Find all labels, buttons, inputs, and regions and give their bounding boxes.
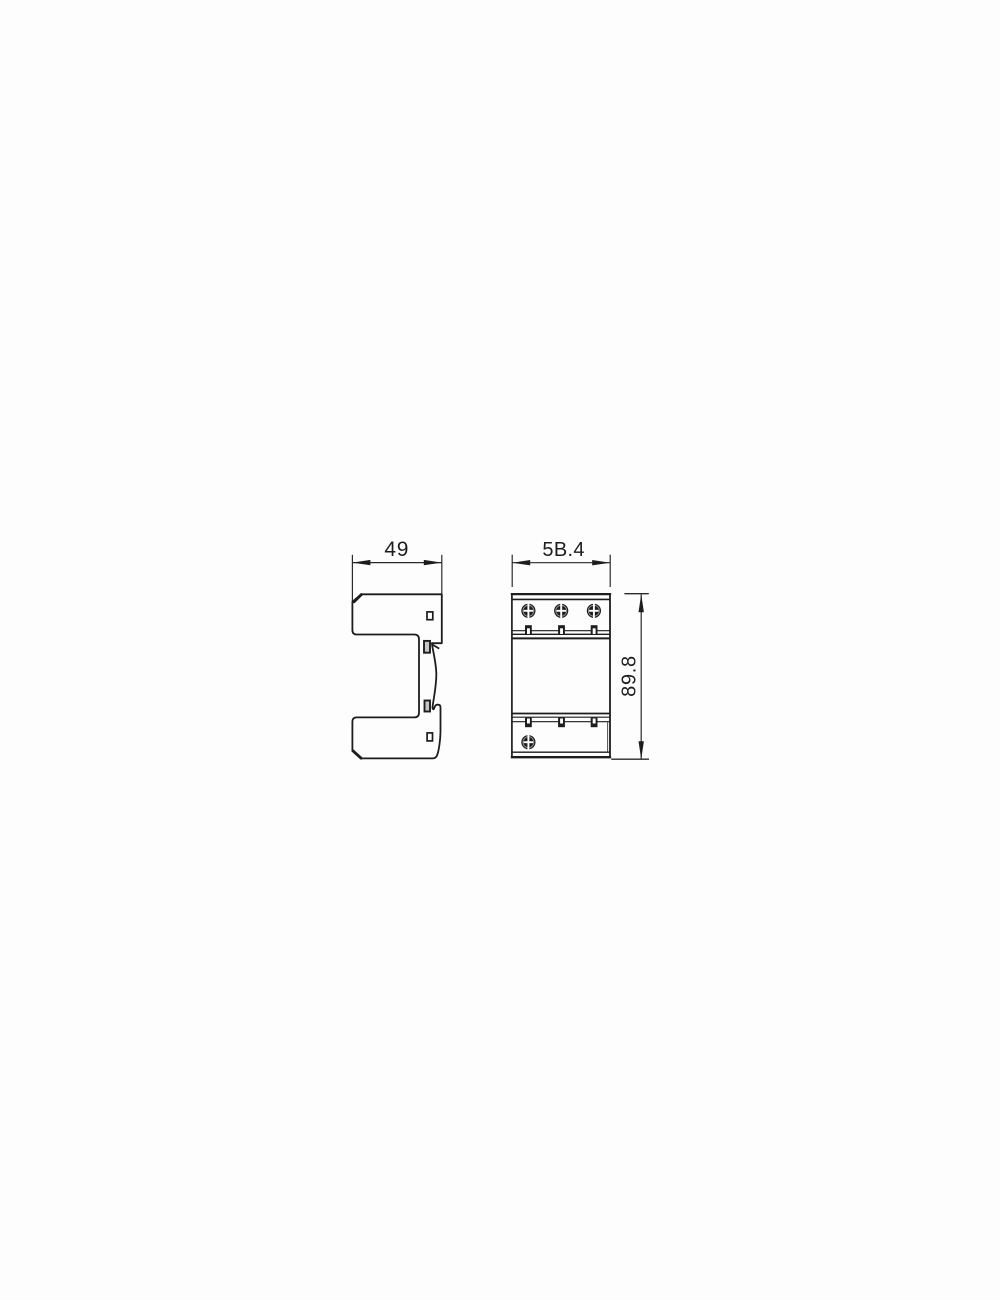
svg-text:49: 49	[384, 538, 409, 561]
svg-text:89.8: 89.8	[618, 655, 640, 697]
svg-text:5B.4: 5B.4	[542, 539, 584, 561]
